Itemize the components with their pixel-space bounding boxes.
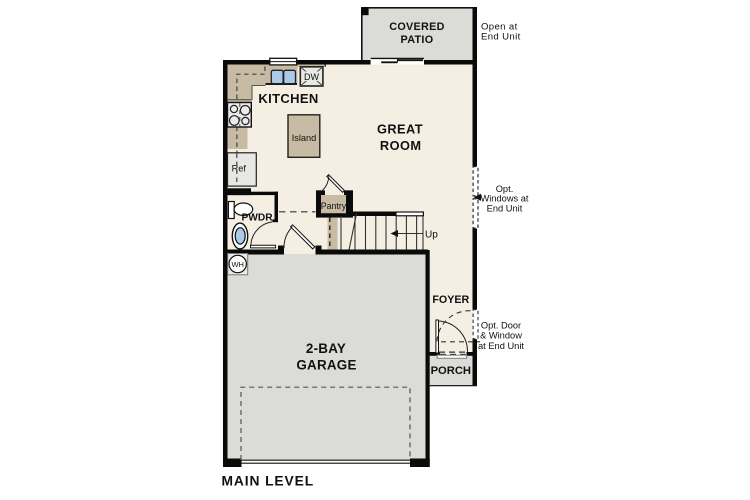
svg-text:MAIN LEVEL: MAIN LEVEL: [222, 473, 315, 488]
svg-text:KITCHEN: KITCHEN: [258, 91, 318, 106]
svg-text:Opt.: Opt.: [496, 184, 514, 194]
svg-text:WH: WH: [231, 260, 244, 269]
svg-text:PATIO: PATIO: [401, 34, 434, 46]
svg-text:Windows at: Windows at: [480, 194, 528, 204]
svg-text:Island: Island: [292, 133, 317, 143]
svg-text:Ref: Ref: [232, 163, 247, 173]
svg-text:End Unit: End Unit: [481, 32, 521, 43]
svg-text:Opt. Door: Opt. Door: [481, 320, 521, 330]
svg-text:DW: DW: [304, 72, 319, 82]
svg-text:COVERED: COVERED: [389, 21, 445, 33]
svg-text:2-BAY: 2-BAY: [306, 341, 346, 356]
svg-text:Up: Up: [425, 229, 438, 240]
svg-text:PWDR: PWDR: [241, 212, 273, 223]
svg-text:ROOM: ROOM: [380, 138, 422, 153]
svg-text:End Unit: End Unit: [487, 203, 523, 213]
svg-text:Pantry: Pantry: [321, 201, 347, 211]
svg-text:PORCH: PORCH: [431, 365, 471, 377]
svg-text:FOYER: FOYER: [432, 294, 469, 306]
svg-text:GREAT: GREAT: [377, 122, 423, 137]
svg-text:GARAGE: GARAGE: [296, 357, 356, 372]
svg-text:& Window: & Window: [480, 331, 522, 341]
svg-text:at End Unit: at End Unit: [478, 341, 524, 351]
